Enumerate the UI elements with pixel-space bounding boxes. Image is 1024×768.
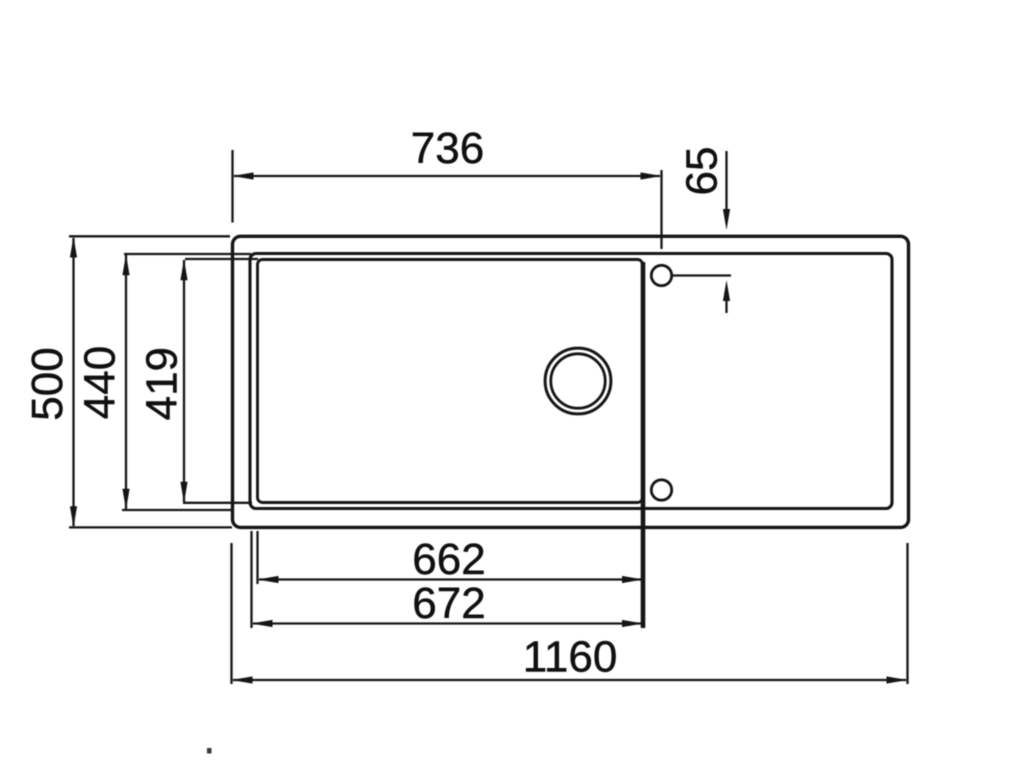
svg-text:1160: 1160 [523,633,618,682]
svg-text:419: 419 [138,347,187,420]
svg-text:736: 736 [411,124,484,173]
svg-text:662: 662 [412,535,485,584]
svg-text:500: 500 [23,347,72,420]
svg-text:65: 65 [678,147,727,196]
svg-text:672: 672 [412,579,485,628]
svg-text:440: 440 [76,346,125,419]
